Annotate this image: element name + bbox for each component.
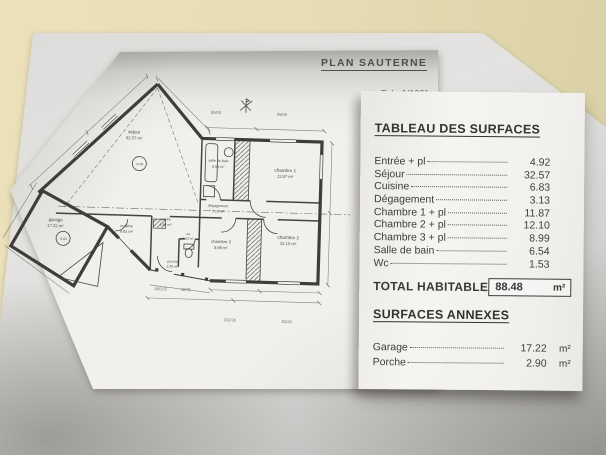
row-dot-leader: [411, 186, 507, 188]
row-value: 17.22: [507, 342, 547, 354]
row-label: Porche: [373, 356, 406, 368]
row-value: 12.10: [510, 220, 550, 232]
room-label-degagement: dégagement: [208, 204, 228, 209]
room-area-salle-de-bain: 6.54 m²: [212, 165, 225, 169]
row-value: 2.90: [507, 357, 547, 369]
row-dot-leader: [448, 225, 507, 227]
row-label: Dégagement: [374, 193, 434, 206]
dim-mark-3: 90/225: [154, 286, 167, 291]
row-value: 6.83: [510, 182, 550, 194]
room-label-chambre1: chambre 1: [274, 168, 296, 174]
plan-title: PLAN SAUTERNE: [321, 57, 427, 71]
room-area-chambre3: 8.99 m²: [214, 245, 228, 250]
room-area-garage: 17.22 m²: [47, 223, 64, 229]
row-label: Séjour: [374, 168, 404, 180]
room-area-chambre1: 11.87 m²: [277, 174, 294, 179]
row-label: Chambre 2 + pl: [374, 219, 446, 232]
row-dot-leader: [448, 212, 507, 214]
room-area-chambre2: 12.10 m²: [280, 241, 297, 247]
row-label: Salle de bain: [374, 244, 435, 257]
row-unit: m²: [547, 344, 571, 355]
dimension-lines: [1, 72, 333, 304]
level-text-garage: -0.03: [59, 237, 67, 241]
row-value: 1.53: [509, 258, 549, 270]
dim-mark-2: 05/08: [277, 112, 288, 117]
annex-rows: Garage17.22m² Porche2.90m²: [373, 341, 571, 373]
row-label: Garage: [373, 341, 408, 353]
row-value: 6.54: [510, 245, 550, 257]
row-label: Chambre 1 + pl: [374, 206, 446, 219]
room-area-porche: 2.90 m²: [166, 264, 178, 268]
total-value-box: 88.48 m²: [488, 278, 571, 297]
row-label: Cuisine: [374, 180, 409, 192]
room-label-chambre3: chambre 3: [211, 239, 232, 245]
row-dot-leader: [436, 250, 506, 252]
row-unit: m²: [547, 359, 571, 370]
row-value: 8.99: [510, 232, 550, 244]
surface-table-rows: Entrée + pl4.92 Séjour32.57 Cuisine6.83 …: [373, 155, 550, 271]
room-label-porche: porche: [167, 259, 178, 263]
room-label-entree: entrée: [161, 217, 171, 221]
room-label-wc: wc: [186, 232, 190, 236]
dim-mark-6: 83/28: [282, 319, 293, 324]
washbasin: [224, 148, 233, 157]
row-dot-leader: [436, 199, 507, 201]
row-dot-leader: [448, 237, 507, 239]
room-area-degagement: 3.13 m²: [212, 209, 225, 213]
placard-chambres23: [246, 219, 262, 282]
row-value: 3.13: [510, 194, 550, 206]
total-value: 88.48: [495, 281, 523, 293]
photo-of-floor-plan-documents: { "photo": { "background_color": "#e7dcb…: [0, 0, 606, 455]
north-compass-icon: [240, 99, 252, 113]
dim-mark-5: 232/28: [224, 317, 237, 322]
room-label-chambre2: chambre 2: [277, 235, 299, 241]
dimension-ticks: [27, 70, 336, 305]
interior-walls: [54, 134, 322, 275]
table-row: Salle de bain6.54: [374, 244, 550, 258]
total-label: TOTAL HABITABLE: [373, 279, 488, 294]
row-value: 4.92: [510, 156, 550, 168]
room-area-wc: 1.53 m²: [183, 236, 194, 240]
room-area-entree: 4.92 m²: [159, 223, 172, 227]
dim-mark-4: 40/75: [181, 287, 192, 292]
room-area-sejour: 32.57 m²: [126, 135, 143, 141]
row-label: Entrée + pl: [374, 155, 425, 167]
room-area-cuisine: 6.83 m²: [120, 230, 134, 234]
surface-table-sheet: TABLEAU DES SURFACES Entrée + pl4.92 Séj…: [358, 91, 585, 391]
row-dot-leader: [408, 362, 504, 364]
placard-chambre1: [233, 139, 250, 200]
row-dot-leader: [410, 347, 504, 349]
annex-title: SURFACES ANNEXES: [373, 307, 509, 322]
axis-dashdot-line: [58, 206, 350, 215]
dim-mark-1: 80/05: [211, 110, 222, 115]
table-row: Garage17.22m²: [373, 341, 571, 358]
level-text-sejour: +0.00: [135, 162, 143, 166]
row-value: 11.87: [510, 207, 550, 219]
row-label: Chambre 3 + pl: [374, 231, 446, 244]
table-row: Porche2.90m²: [373, 356, 571, 373]
room-label-garage: garage: [48, 217, 63, 222]
room-label-cuisine: cuisine: [120, 223, 133, 228]
total-unit: m²: [553, 283, 565, 294]
room-label-sejour: séjour: [128, 129, 141, 134]
row-label: Wc: [373, 257, 388, 269]
row-dot-leader: [407, 174, 508, 176]
toilet: [185, 248, 192, 257]
total-row: TOTAL HABITABLE 88.48 m²: [373, 277, 571, 297]
row-dot-leader: [427, 161, 507, 163]
row-dot-leader: [391, 262, 507, 264]
surface-table-title: TABLEAU DES SURFACES: [375, 121, 541, 136]
row-value: 32.57: [510, 169, 550, 181]
table-row: Wc1.53: [373, 257, 549, 271]
room-label-salle-de-bain: salle de bain: [208, 159, 228, 164]
